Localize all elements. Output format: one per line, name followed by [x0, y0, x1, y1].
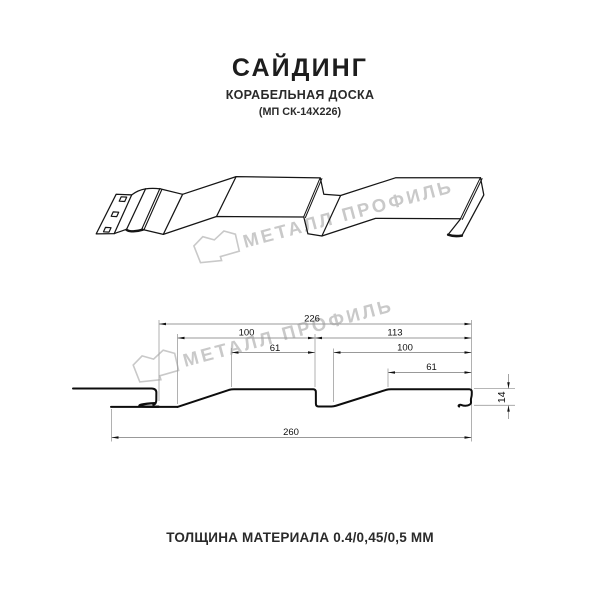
- svg-text:61: 61: [270, 343, 281, 354]
- svg-text:САЙДИНГ: САЙДИНГ: [232, 52, 368, 82]
- svg-text:100: 100: [239, 328, 255, 339]
- svg-text:61: 61: [426, 362, 437, 373]
- svg-text:14: 14: [496, 391, 508, 403]
- svg-text:226: 226: [304, 314, 320, 325]
- svg-text:КОРАБЕЛЬНАЯ ДОСКА: КОРАБЕЛЬНАЯ ДОСКА: [226, 88, 375, 102]
- svg-text:МЕТАЛЛ ПРОФИЛЬ: МЕТАЛЛ ПРОФИЛЬ: [181, 294, 396, 370]
- svg-text:260: 260: [283, 427, 299, 438]
- svg-text:100: 100: [397, 343, 413, 354]
- svg-text:113: 113: [387, 328, 402, 339]
- svg-text:(МП СК-14Х226): (МП СК-14Х226): [259, 106, 342, 118]
- svg-text:ТОЛЩИНА МАТЕРИАЛА 0.4/0,45/0,5: ТОЛЩИНА МАТЕРИАЛА 0.4/0,45/0,5 ММ: [166, 530, 434, 545]
- svg-text:МЕТАЛЛ ПРОФИЛЬ: МЕТАЛЛ ПРОФИЛЬ: [241, 175, 456, 251]
